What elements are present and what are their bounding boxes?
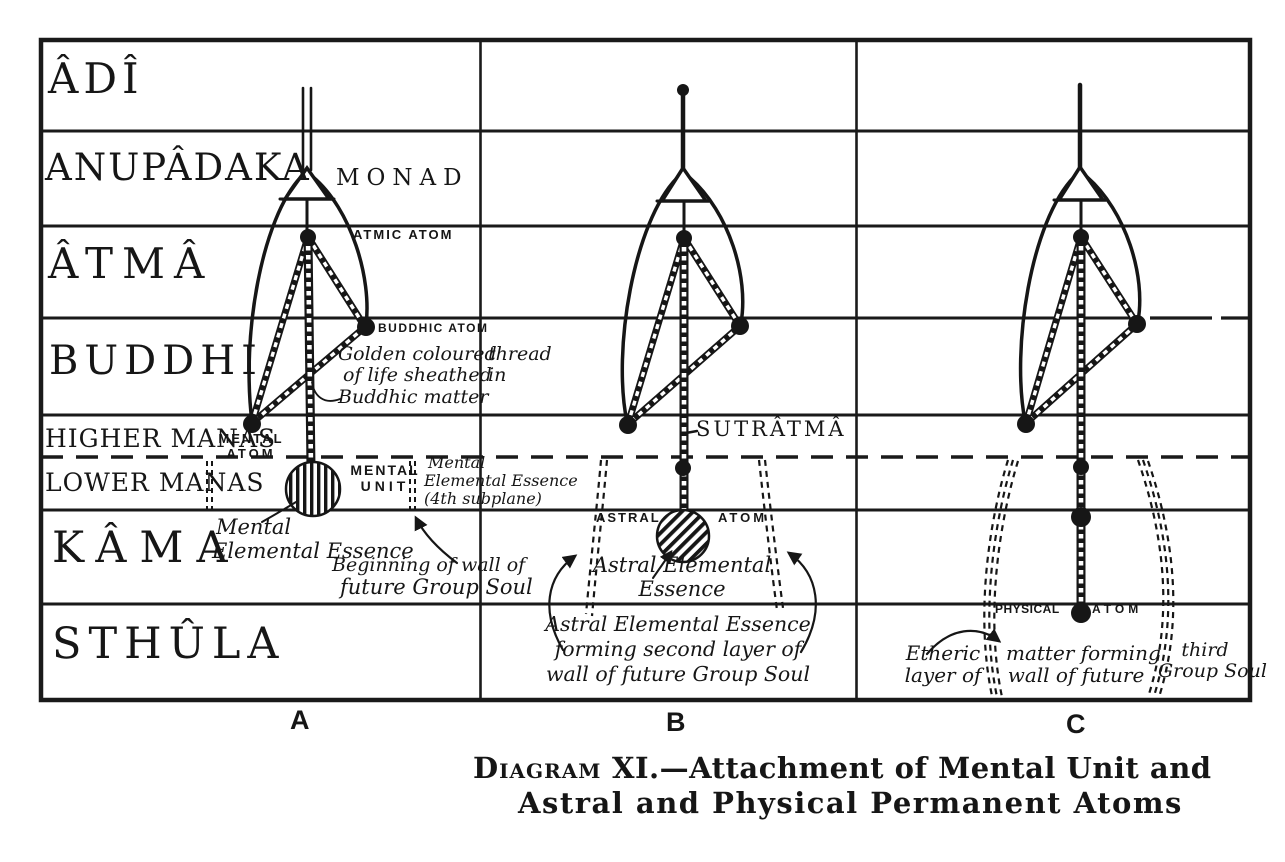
etheric-layer-note: Etheric layer of	[893, 642, 993, 687]
astral-atom-c	[1071, 507, 1091, 527]
mental-atom-c	[1017, 415, 1035, 433]
plane-label-buddhi: BUDDHI	[49, 341, 263, 381]
sutratma-label: SUTRÂTMÂ	[696, 419, 847, 440]
astral-essence-note: Astral Elemental Essence	[592, 554, 772, 601]
plane-label-atma: ÂTMÂ	[48, 243, 213, 285]
atmic-atom-label: ATMIC ATOM	[353, 228, 453, 243]
golden-thread-note: Golden coloured of life sheathed Buddhic…	[338, 344, 497, 408]
atmic-atom-b	[676, 230, 692, 246]
mental-atom-label: MENTAL ATOM	[212, 432, 290, 462]
buddhic-atom-b	[731, 317, 749, 335]
monad-label: MONAD	[336, 167, 469, 190]
astral-atom-label-left: ASTRAL	[596, 511, 661, 526]
plane-label-adi: ÂDÎ	[48, 58, 144, 100]
plane-label-lower-manas: LOWER MANAS	[45, 470, 265, 495]
mental-unit-label: MENTAL UNIT	[344, 462, 426, 494]
column-letter-a: A	[290, 705, 310, 736]
mental-unit-b	[675, 460, 691, 476]
caption-diagram-word: Diagram	[473, 751, 601, 785]
atmic-atom-c	[1073, 229, 1089, 245]
buddhic-atom-a	[357, 318, 375, 336]
physical-atom-c	[1071, 603, 1091, 623]
atmic-atom-a	[300, 229, 316, 245]
buddhic-atom-c	[1128, 315, 1146, 333]
physical-atom-label-left: PHYSICAL	[995, 603, 1060, 617]
column-letter-b: B	[666, 707, 686, 738]
third-group-soul-note: third Group Soul	[1158, 640, 1252, 683]
matter-forming-note: matter forming wall of future	[1006, 642, 1146, 687]
buddhic-atom-label: BUDDHIC ATOM	[378, 322, 488, 336]
caption-line1-rest: XI.—Attachment of Mental Unit and	[601, 751, 1211, 785]
plane-label-sthula: STHÛLA	[52, 623, 285, 666]
wall-beginning-note: Beginning of wall of future Group Soul	[332, 555, 533, 600]
diagram-page: ÂDÎ ANUPÂDAKA ÂTMÂ BUDDHI HIGHER MANAS L…	[0, 0, 1285, 862]
column-letter-c: C	[1066, 709, 1086, 740]
mental-unit-c	[1073, 459, 1089, 475]
golden-thread-note-cont: thread in	[488, 344, 552, 387]
mental-atom-b	[619, 416, 637, 434]
physical-atom-label-right: ATOM	[1092, 603, 1142, 617]
caption-line-1: Diagram XI.—Attachment of Mental Unit an…	[473, 751, 1212, 785]
plane-label-anupadaka: ANUPÂDAKA	[45, 149, 311, 186]
astral-atom-label-right: ATOM	[718, 511, 767, 526]
wall-second-layer-note: Astral Elemental Essence forming second …	[538, 612, 818, 687]
mental-unit-circle	[286, 462, 340, 516]
mental-essence-subplane-note: Mental Elemental Essence (4th subplane)	[424, 454, 578, 508]
caption-line-2: Astral and Physical Permanent Atoms	[518, 786, 1183, 820]
